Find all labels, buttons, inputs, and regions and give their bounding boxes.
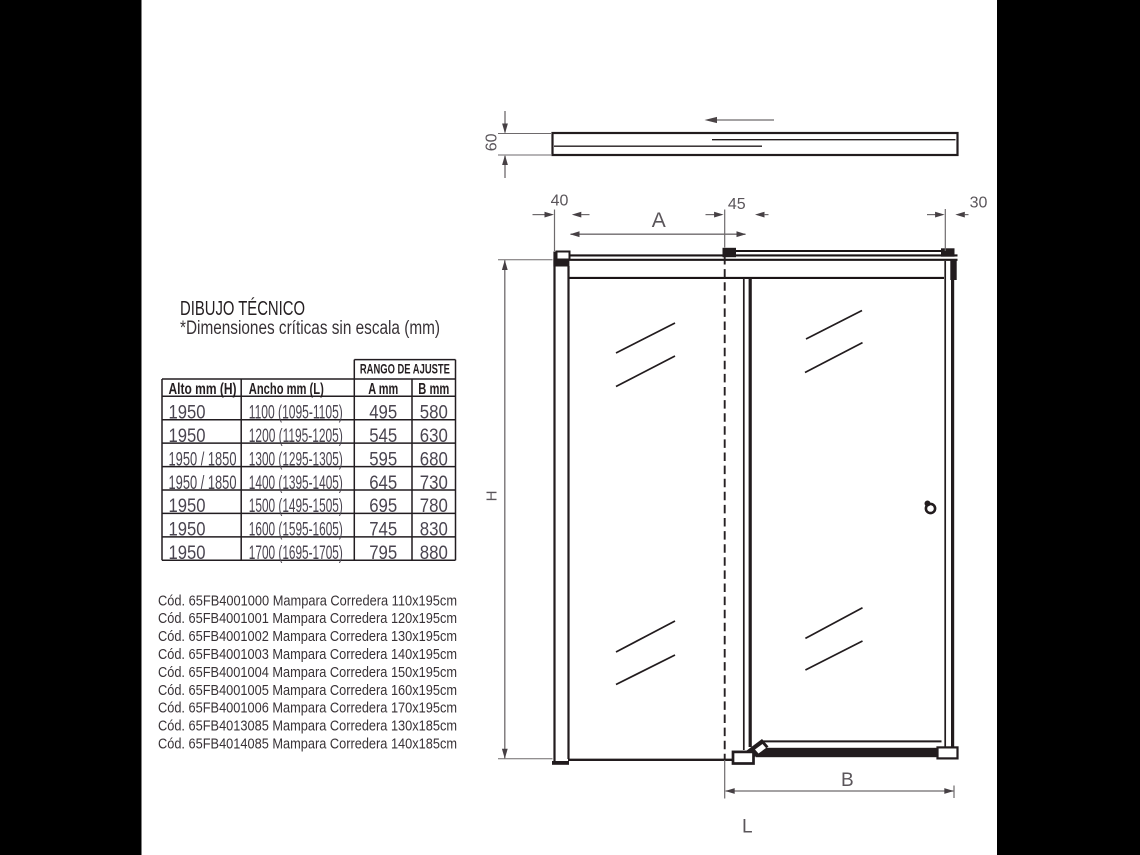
- svg-text:60: 60: [483, 133, 500, 151]
- svg-text:830: 830: [420, 520, 448, 541]
- svg-text:1500 (1495-1505): 1500 (1495-1505): [249, 496, 343, 517]
- svg-text:Cód. 65FB4001002 Mampara Corre: Cód. 65FB4001002 Mampara Corredera 130x1…: [158, 629, 457, 645]
- svg-text:B: B: [841, 770, 854, 791]
- svg-text:*Dimensiones críticas sin esca: *Dimensiones críticas sin escala (mm): [180, 318, 440, 339]
- svg-text:595: 595: [369, 449, 397, 470]
- svg-text:495: 495: [369, 403, 397, 424]
- svg-text:880: 880: [420, 543, 448, 564]
- svg-text:1200 (1195-1205): 1200 (1195-1205): [249, 426, 343, 447]
- svg-text:40: 40: [551, 192, 569, 209]
- svg-text:730: 730: [420, 473, 448, 494]
- svg-text:645: 645: [369, 473, 397, 494]
- svg-text:745: 745: [369, 520, 397, 541]
- svg-text:1950: 1950: [169, 520, 206, 541]
- svg-text:Cód. 65FB4014085 Mampara Corre: Cód. 65FB4014085 Mampara Corredera 140x1…: [158, 737, 457, 753]
- svg-text:Cód. 65FB4001005 Mampara Corre: Cód. 65FB4001005 Mampara Corredera 160x1…: [158, 683, 457, 699]
- svg-text:Cód. 65FB4013085 Mampara Corre: Cód. 65FB4013085 Mampara Corredera 130x1…: [158, 719, 457, 735]
- svg-text:1950: 1950: [169, 496, 206, 517]
- svg-text:1600 (1595-1605): 1600 (1595-1605): [249, 520, 343, 541]
- svg-text:630: 630: [420, 426, 448, 447]
- svg-text:Alto mm (H): Alto mm (H): [169, 381, 237, 398]
- svg-text:1700 (1695-1705): 1700 (1695-1705): [249, 543, 343, 564]
- svg-text:45: 45: [728, 196, 746, 213]
- svg-text:Ancho mm (L): Ancho mm (L): [249, 381, 324, 398]
- svg-text:1950: 1950: [169, 543, 206, 564]
- svg-text:RANGO DE AJUSTE: RANGO DE AJUSTE: [360, 361, 450, 377]
- svg-text:H: H: [483, 491, 500, 502]
- svg-text:A: A: [652, 209, 666, 232]
- svg-text:1950 / 1850: 1950 / 1850: [169, 449, 237, 470]
- svg-text:1100 (1095-1105): 1100 (1095-1105): [249, 403, 343, 424]
- svg-text:A mm: A mm: [368, 381, 398, 398]
- svg-text:695: 695: [369, 496, 397, 517]
- svg-text:Cód. 65FB4001001 Mampara Corre: Cód. 65FB4001001 Mampara Corredera 120x1…: [158, 611, 457, 627]
- svg-text:30: 30: [970, 195, 988, 212]
- svg-text:B mm: B mm: [418, 381, 449, 398]
- svg-text:1950 / 1850: 1950 / 1850: [169, 473, 237, 494]
- svg-text:680: 680: [420, 449, 448, 470]
- svg-text:1950: 1950: [169, 426, 206, 447]
- svg-text:580: 580: [420, 403, 448, 424]
- svg-text:Cód. 65FB4001000 Mampara Corre: Cód. 65FB4001000 Mampara Corredera 110x1…: [158, 593, 457, 609]
- svg-text:Cód. 65FB4001003 Mampara Corre: Cód. 65FB4001003 Mampara Corredera 140x1…: [158, 647, 457, 663]
- svg-text:1300 (1295-1305): 1300 (1295-1305): [249, 449, 343, 470]
- svg-text:Cód. 65FB4001004 Mampara Corre: Cód. 65FB4001004 Mampara Corredera 150x1…: [158, 665, 457, 681]
- svg-text:L: L: [742, 816, 753, 837]
- svg-text:780: 780: [420, 496, 448, 517]
- svg-text:Cód. 65FB4001006 Mampara Corre: Cód. 65FB4001006 Mampara Corredera 170x1…: [158, 701, 457, 717]
- svg-text:545: 545: [369, 426, 397, 447]
- svg-text:DIBUJO TÉCNICO: DIBUJO TÉCNICO: [180, 297, 305, 320]
- svg-text:1400 (1395-1405): 1400 (1395-1405): [249, 473, 343, 494]
- svg-text:795: 795: [369, 543, 397, 564]
- svg-text:1950: 1950: [169, 403, 206, 424]
